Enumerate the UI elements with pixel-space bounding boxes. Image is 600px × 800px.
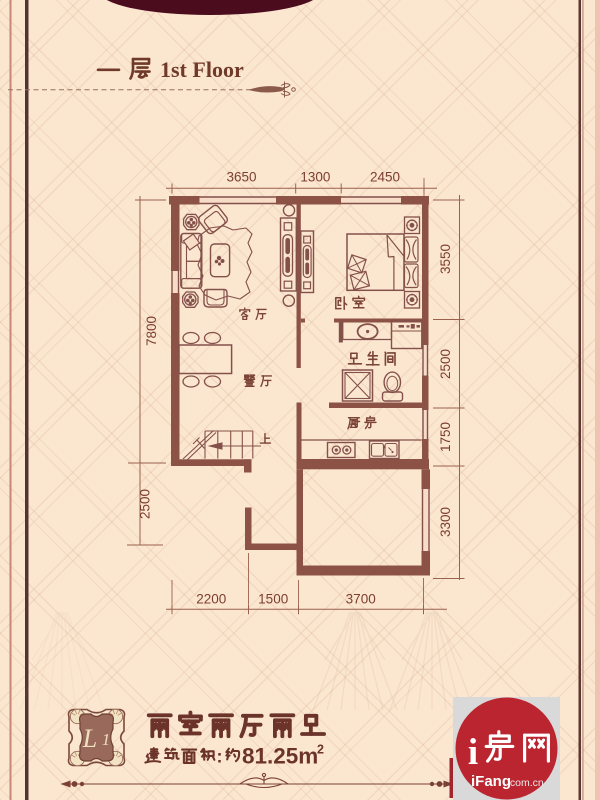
svg-text:.com.cn: .com.cn xyxy=(507,777,544,789)
svg-text:2: 2 xyxy=(317,743,324,757)
svg-text:81.25m: 81.25m xyxy=(242,744,318,769)
svg-text:1: 1 xyxy=(102,730,111,749)
svg-text::: : xyxy=(217,747,223,767)
svg-text:L: L xyxy=(82,724,97,753)
svg-text:1st Floor: 1st Floor xyxy=(160,57,244,82)
svg-text:3300: 3300 xyxy=(438,507,453,537)
svg-text:iFang: iFang xyxy=(471,773,511,790)
svg-text:2500: 2500 xyxy=(138,489,153,519)
svg-text:1750: 1750 xyxy=(438,422,453,452)
svg-text:7800: 7800 xyxy=(144,316,159,346)
svg-text:1300: 1300 xyxy=(300,170,330,185)
svg-text:2500: 2500 xyxy=(438,349,453,379)
svg-text:i: i xyxy=(468,732,478,773)
svg-text:3700: 3700 xyxy=(346,592,376,607)
svg-text:3550: 3550 xyxy=(438,244,453,274)
svg-text:2450: 2450 xyxy=(370,170,400,185)
svg-text:1500: 1500 xyxy=(258,592,288,607)
svg-text:2200: 2200 xyxy=(196,592,226,607)
svg-text:3650: 3650 xyxy=(226,170,256,185)
